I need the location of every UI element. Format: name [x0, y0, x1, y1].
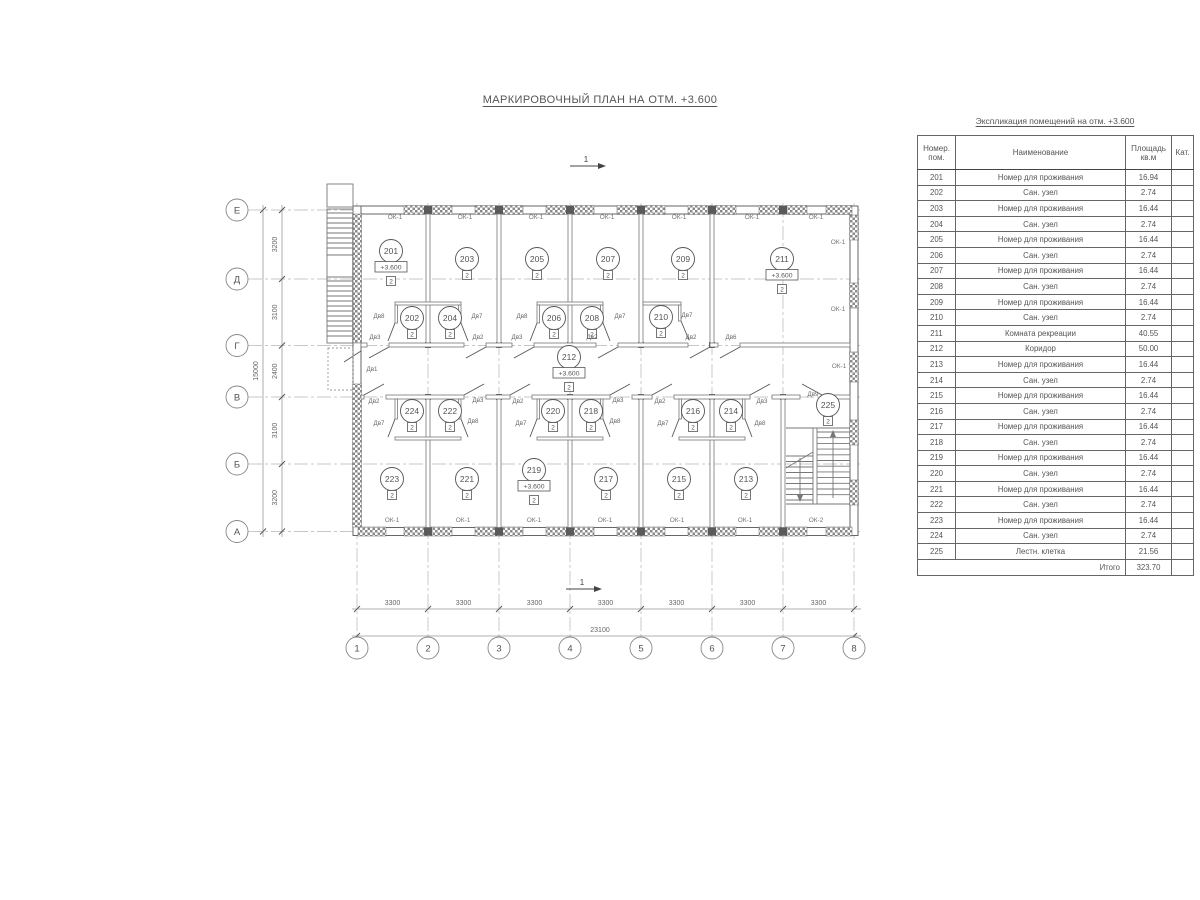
room-marker-206: 2062 [543, 307, 566, 339]
svg-text:2: 2 [389, 279, 393, 286]
svg-text:222: 222 [443, 406, 457, 416]
room-cat-cell [1172, 372, 1194, 388]
svg-text:2: 2 [826, 419, 830, 426]
room-cat-cell [1172, 435, 1194, 451]
svg-text:2: 2 [659, 331, 663, 338]
explication-row: 207 Номер для проживания 16.44 [918, 263, 1194, 279]
window-label: ОК-1 [456, 517, 471, 524]
room-name-cell: Номер для проживания [956, 263, 1126, 279]
room-marker-223: 2232 [381, 468, 404, 500]
explication-row: 206 Сан. узел 2.74 [918, 247, 1194, 263]
window-label: ОК-1 [670, 517, 685, 524]
svg-text:215: 215 [672, 474, 686, 484]
room-cat-cell [1172, 450, 1194, 466]
window-label: ОК-1 [809, 214, 824, 221]
room-name-cell: Сан. узел [956, 528, 1126, 544]
explication-row: 225 Лестн. клетка 21.56 [918, 544, 1194, 560]
door-label: Дв3 [512, 334, 523, 341]
room-cat-cell [1172, 232, 1194, 248]
room-area-cell: 16.44 [1126, 357, 1172, 373]
window-label: ОК-1 [529, 214, 544, 221]
room-number-cell: 215 [918, 388, 956, 404]
svg-text:2: 2 [425, 643, 430, 654]
room-cat-cell [1172, 497, 1194, 513]
room-number-cell: 211 [918, 325, 956, 341]
svg-text:219: 219 [527, 465, 541, 475]
room-area-cell: 16.44 [1126, 263, 1172, 279]
dim-label: 3300 [527, 600, 543, 607]
room-number-cell: 223 [918, 513, 956, 529]
room-name-cell: Номер для проживания [956, 513, 1126, 529]
stairwell-stairs [786, 428, 850, 504]
svg-text:+3.600: +3.600 [524, 484, 545, 491]
svg-text:2: 2 [410, 425, 414, 432]
room-number-cell: 207 [918, 263, 956, 279]
room-number-cell: 201 [918, 170, 956, 186]
explication-row: 205 Номер для проживания 16.44 [918, 232, 1194, 248]
svg-text:2: 2 [551, 425, 555, 432]
svg-text:2: 2 [567, 385, 571, 392]
explication-row: 222 Сан. узел 2.74 [918, 497, 1194, 513]
room-number-cell: 214 [918, 372, 956, 388]
room-number-cell: 224 [918, 528, 956, 544]
room-area-cell: 16.44 [1126, 450, 1172, 466]
col-axis-3: 3 [488, 637, 510, 659]
dim-label: 3300 [598, 600, 614, 607]
svg-text:209: 209 [676, 254, 690, 264]
explication-panel: Экспликация помещений на отм. +3.600 Ном… [917, 116, 1193, 576]
door-label: Дв2 [369, 398, 380, 405]
room-area-cell: 2.74 [1126, 279, 1172, 295]
room-name-cell: Номер для проживания [956, 419, 1126, 435]
room-name-cell: Сан. узел [956, 247, 1126, 263]
header-category: Кат. [1172, 136, 1194, 170]
svg-text:1: 1 [354, 643, 359, 654]
door-label: Дв7 [658, 420, 669, 427]
row-axis-Б: Б [226, 453, 248, 475]
window-label: ОК-1 [388, 214, 403, 221]
row-axis-Г: Г [226, 335, 248, 357]
dim-label: 3100 [272, 423, 279, 439]
door-label: Дв2 [686, 334, 697, 341]
room-cat-cell [1172, 357, 1194, 373]
room-name-cell: Сан. узел [956, 185, 1126, 201]
svg-text:2: 2 [390, 493, 394, 500]
room-area-cell: 2.74 [1126, 435, 1172, 451]
svg-text:+3.600: +3.600 [559, 371, 580, 378]
explication-row: 204 Сан. узел 2.74 [918, 216, 1194, 232]
room-area-cell: 16.44 [1126, 513, 1172, 529]
svg-text:206: 206 [547, 313, 561, 323]
room-area-cell: 16.94 [1126, 170, 1172, 186]
dim-label: 3300 [456, 600, 472, 607]
room-marker-219: 219+3.6002 [518, 459, 550, 505]
window-label: ОК-1 [672, 214, 687, 221]
room-area-cell: 16.44 [1126, 388, 1172, 404]
svg-text:204: 204 [443, 313, 457, 323]
window-label: ОК-2 [809, 517, 824, 524]
room-name-cell: Номер для проживания [956, 481, 1126, 497]
explication-header-row: Номер. пом. Наименование Площадь кв.м Ка… [918, 136, 1194, 170]
room-area-cell: 16.44 [1126, 294, 1172, 310]
room-cat-cell [1172, 216, 1194, 232]
window-label: ОК-1 [598, 517, 613, 524]
col-axis-8: 8 [843, 637, 865, 659]
room-number-cell: 205 [918, 232, 956, 248]
room-cat-cell [1172, 247, 1194, 263]
svg-text:2: 2 [604, 493, 608, 500]
room-cat-cell [1172, 341, 1194, 357]
door-label: Дв8 [374, 313, 385, 320]
room-name-cell: Номер для проживания [956, 357, 1126, 373]
svg-text:224: 224 [405, 406, 419, 416]
room-cat-cell [1172, 279, 1194, 295]
room-area-cell: 2.74 [1126, 247, 1172, 263]
door-label: Дв9 [808, 391, 819, 398]
room-number-cell: 225 [918, 544, 956, 560]
room-name-cell: Сан. узел [956, 466, 1126, 482]
room-name-cell: Номер для проживания [956, 450, 1126, 466]
room-marker-203: 2032 [456, 248, 479, 280]
room-cat-cell [1172, 201, 1194, 217]
door-label: Дв8 [755, 420, 766, 427]
door-label: Дв3 [370, 334, 381, 341]
room-marker-213: 2132 [735, 468, 758, 500]
svg-text:2: 2 [410, 332, 414, 339]
section-mark-label: 1 [580, 578, 585, 587]
svg-text:2: 2 [691, 425, 695, 432]
svg-text:2: 2 [606, 273, 610, 280]
explication-row: 219 Номер для проживания 16.44 [918, 450, 1194, 466]
door-label: Дв2 [473, 334, 484, 341]
room-number-cell: 202 [918, 185, 956, 201]
door-label: Дв8 [517, 313, 528, 320]
col-axis-4: 4 [559, 637, 581, 659]
room-marker-215: 2152 [668, 468, 691, 500]
dim-label: 3300 [385, 600, 401, 607]
room-marker-217: 2172 [595, 468, 618, 500]
door-label: Дв2 [655, 398, 666, 405]
svg-text:+3.600: +3.600 [381, 265, 402, 272]
svg-text:7: 7 [780, 643, 785, 654]
row-axis-А: А [226, 521, 248, 543]
room-number-cell: 219 [918, 450, 956, 466]
room-number-cell: 217 [918, 419, 956, 435]
room-cat-cell [1172, 325, 1194, 341]
room-marker-212: 212+3.6002 [553, 346, 585, 392]
door-label: Дв7 [682, 312, 693, 319]
explication-row: 213 Номер для проживания 16.44 [918, 357, 1194, 373]
svg-text:2: 2 [780, 287, 784, 294]
room-name-cell: Номер для проживания [956, 170, 1126, 186]
explication-row: 210 Сан. узел 2.74 [918, 310, 1194, 326]
room-area-cell: 2.74 [1126, 403, 1172, 419]
room-name-cell: Сан. узел [956, 372, 1126, 388]
explication-row: 221 Номер для проживания 16.44 [918, 481, 1194, 497]
window-label: ОК-1 [745, 214, 760, 221]
explication-table: Номер. пом. Наименование Площадь кв.м Ка… [917, 135, 1194, 576]
room-area-cell: 16.44 [1126, 201, 1172, 217]
svg-text:205: 205 [530, 254, 544, 264]
svg-text:225: 225 [821, 400, 835, 410]
svg-text:2: 2 [535, 273, 539, 280]
dim-total-bottom: 23100 [590, 627, 610, 634]
svg-text:2: 2 [465, 493, 469, 500]
svg-text:2: 2 [532, 498, 536, 505]
svg-text:223: 223 [385, 474, 399, 484]
dim-label: 2400 [272, 363, 279, 379]
room-number-cell: 203 [918, 201, 956, 217]
room-area-cell: 16.44 [1126, 481, 1172, 497]
svg-text:6: 6 [709, 643, 714, 654]
window-label: ОК-1 [458, 214, 473, 221]
explication-row: 224 Сан. узел 2.74 [918, 528, 1194, 544]
room-area-cell: 2.74 [1126, 466, 1172, 482]
svg-text:Б: Б [234, 459, 240, 470]
room-area-cell: 21.56 [1126, 544, 1172, 560]
section-mark-label: 1 [584, 155, 589, 164]
room-name-cell: Лестн. клетка [956, 544, 1126, 560]
svg-text:213: 213 [739, 474, 753, 484]
room-cat-cell [1172, 388, 1194, 404]
total-value: 323.70 [1126, 559, 1172, 575]
room-cat-cell [1172, 544, 1194, 560]
svg-text:Д: Д [234, 274, 241, 285]
room-name-cell: Сан. узел [956, 497, 1126, 513]
room-marker-210: 2102 [650, 306, 673, 338]
svg-text:3: 3 [496, 643, 501, 654]
room-marker-209: 2092 [672, 248, 695, 280]
svg-text:208: 208 [585, 313, 599, 323]
explication-row: 214 Сан. узел 2.74 [918, 372, 1194, 388]
door-label: Дв3 [473, 397, 484, 404]
door-label: Дв1 [367, 366, 378, 373]
room-number-cell: 204 [918, 216, 956, 232]
svg-text:212: 212 [562, 352, 576, 362]
room-marker-221: 2212 [456, 468, 479, 500]
door-label: Дв3 [757, 398, 768, 405]
svg-text:5: 5 [638, 643, 643, 654]
svg-text:217: 217 [599, 474, 613, 484]
corridor-walls [361, 343, 850, 399]
room-marker-225: 2252 [817, 394, 840, 426]
room-cat-cell [1172, 170, 1194, 186]
window-label: ОК-1 [831, 239, 846, 246]
svg-text:Е: Е [234, 205, 240, 216]
row-axis-Е: Е [226, 199, 248, 221]
svg-text:2: 2 [448, 425, 452, 432]
svg-text:+3.600: +3.600 [772, 273, 793, 280]
room-marker-201: 201+3.6002 [375, 240, 407, 286]
door-label: Дв6 [726, 334, 737, 341]
room-name-cell: Сан. узел [956, 435, 1126, 451]
room-area-cell: 50.00 [1126, 341, 1172, 357]
dim-label: 3100 [272, 304, 279, 320]
room-cat-cell [1172, 263, 1194, 279]
dim-label: 3300 [740, 600, 756, 607]
room-cat-cell [1172, 528, 1194, 544]
room-area-cell: 40.55 [1126, 325, 1172, 341]
explication-row: 208 Сан. узел 2.74 [918, 279, 1194, 295]
explication-row: 203 Номер для проживания 16.44 [918, 201, 1194, 217]
room-marker-202: 2022 [401, 307, 424, 339]
svg-text:2: 2 [677, 493, 681, 500]
room-name-cell: Номер для проживания [956, 232, 1126, 248]
room-number-cell: 218 [918, 435, 956, 451]
door-label: Дв7 [516, 420, 527, 427]
svg-text:202: 202 [405, 313, 419, 323]
room-marker-205: 2052 [526, 248, 549, 280]
header-room-name: Наименование [956, 136, 1126, 170]
header-area: Площадь кв.м [1126, 136, 1172, 170]
room-name-cell: Сан. узел [956, 403, 1126, 419]
dim-label: 3300 [669, 600, 685, 607]
window-label: ОК-1 [738, 517, 753, 524]
dim-label: 3200 [272, 490, 279, 506]
svg-text:А: А [234, 527, 241, 538]
room-marker-207: 2072 [597, 248, 620, 280]
door-label: Дв2 [587, 334, 598, 341]
explication-row: 217 Номер для проживания 16.44 [918, 419, 1194, 435]
svg-text:4: 4 [567, 643, 572, 654]
room-area-cell: 2.74 [1126, 216, 1172, 232]
drawing-sheet: МАРКИРОВОЧНЫЙ ПЛАН НА ОТМ. +3.600 [0, 0, 1200, 900]
total-label: Итого [918, 559, 1126, 575]
room-number-cell: 210 [918, 310, 956, 326]
svg-text:2: 2 [729, 425, 733, 432]
room-marker-211: 211+3.6002 [766, 248, 798, 294]
svg-text:2: 2 [744, 493, 748, 500]
room-marker-216: 2162 [682, 400, 705, 432]
room-number-cell: 221 [918, 481, 956, 497]
room-number-cell: 222 [918, 497, 956, 513]
explication-row: 212 Коридор 50.00 [918, 341, 1194, 357]
explication-row: 202 Сан. узел 2.74 [918, 185, 1194, 201]
svg-text:221: 221 [460, 474, 474, 484]
svg-text:8: 8 [851, 643, 856, 654]
room-area-cell: 2.74 [1126, 185, 1172, 201]
room-name-cell: Сан. узел [956, 310, 1126, 326]
explication-row: 218 Сан. узел 2.74 [918, 435, 1194, 451]
room-name-cell: Сан. узел [956, 279, 1126, 295]
window-label: ОК-1 [600, 214, 615, 221]
room-marker-220: 2202 [542, 400, 565, 432]
room-name-cell: Комната рекреации [956, 325, 1126, 341]
window-label: ОК-1 [832, 363, 847, 370]
room-marker-224: 2242 [401, 400, 424, 432]
room-area-cell: 2.74 [1126, 528, 1172, 544]
col-axis-2: 2 [417, 637, 439, 659]
room-number-cell: 216 [918, 403, 956, 419]
room-area-cell: 16.44 [1126, 419, 1172, 435]
room-name-cell: Коридор [956, 341, 1126, 357]
explication-row: 223 Номер для проживания 16.44 [918, 513, 1194, 529]
room-marker-222: 2222 [439, 400, 462, 432]
dim-total-left: 15000 [253, 361, 260, 381]
explication-row: 201 Номер для проживания 16.94 [918, 170, 1194, 186]
svg-text:214: 214 [724, 406, 738, 416]
svg-text:203: 203 [460, 254, 474, 264]
room-area-cell: 16.44 [1126, 232, 1172, 248]
window-label: ОК-1 [527, 517, 542, 524]
svg-text:218: 218 [584, 406, 598, 416]
room-name-cell: Номер для проживания [956, 294, 1126, 310]
svg-text:216: 216 [686, 406, 700, 416]
room-name-cell: Номер для проживания [956, 388, 1126, 404]
svg-text:210: 210 [654, 312, 668, 322]
room-area-cell: 2.74 [1126, 497, 1172, 513]
svg-text:Г: Г [234, 341, 239, 352]
room-name-cell: Сан. узел [956, 216, 1126, 232]
room-cat-cell [1172, 294, 1194, 310]
room-cat-cell [1172, 419, 1194, 435]
room-marker-218: 2182 [580, 400, 603, 432]
room-name-cell: Номер для проживания [956, 201, 1126, 217]
svg-text:207: 207 [601, 254, 615, 264]
row-axis-Д: Д [226, 268, 248, 290]
room-marker-214: 2142 [720, 400, 743, 432]
door-label: Дв7 [374, 420, 385, 427]
room-number-cell: 206 [918, 247, 956, 263]
room-number-cell: 208 [918, 279, 956, 295]
explication-title: Экспликация помещений на отм. +3.600 [917, 116, 1193, 126]
room-cat-cell [1172, 481, 1194, 497]
door-label: Дв8 [610, 418, 621, 425]
room-number-cell: 212 [918, 341, 956, 357]
svg-text:2: 2 [552, 332, 556, 339]
dim-label: 3200 [272, 237, 279, 253]
explication-row: 216 Сан. узел 2.74 [918, 403, 1194, 419]
header-room-number: Номер. пом. [918, 136, 956, 170]
explication-row: 215 Номер для проживания 16.44 [918, 388, 1194, 404]
total-cat-cell [1172, 559, 1194, 575]
room-number-cell: 220 [918, 466, 956, 482]
room-marker-204: 2042 [439, 307, 462, 339]
room-area-cell: 2.74 [1126, 372, 1172, 388]
explication-row: 211 Комната рекреации 40.55 [918, 325, 1194, 341]
room-cat-cell [1172, 513, 1194, 529]
col-axis-5: 5 [630, 637, 652, 659]
room-cat-cell [1172, 466, 1194, 482]
window-label: ОК-1 [831, 306, 846, 313]
door-label: Дв8 [468, 418, 479, 425]
svg-text:2: 2 [448, 332, 452, 339]
room-cat-cell [1172, 403, 1194, 419]
col-axis-7: 7 [772, 637, 794, 659]
door-label: Дв7 [615, 313, 626, 320]
room-number-cell: 213 [918, 357, 956, 373]
svg-text:220: 220 [546, 406, 560, 416]
explication-row: 209 Номер для проживания 16.44 [918, 294, 1194, 310]
svg-text:211: 211 [775, 254, 789, 264]
door-label: Дв7 [472, 313, 483, 320]
window-label: ОК-1 [385, 517, 400, 524]
door-label: Дв2 [513, 398, 524, 405]
row-axis-В: В [226, 386, 248, 408]
total-row: Итого 323.70 [918, 559, 1194, 575]
svg-text:В: В [234, 392, 240, 403]
col-axis-1: 1 [346, 637, 368, 659]
svg-text:201: 201 [384, 246, 398, 256]
door-label: Дв3 [613, 397, 624, 404]
svg-text:2: 2 [465, 273, 469, 280]
room-cat-cell [1172, 310, 1194, 326]
explication-row: 220 Сан. узел 2.74 [918, 466, 1194, 482]
svg-text:2: 2 [681, 273, 685, 280]
room-area-cell: 2.74 [1126, 310, 1172, 326]
col-axis-6: 6 [701, 637, 723, 659]
dim-label: 3300 [811, 600, 827, 607]
